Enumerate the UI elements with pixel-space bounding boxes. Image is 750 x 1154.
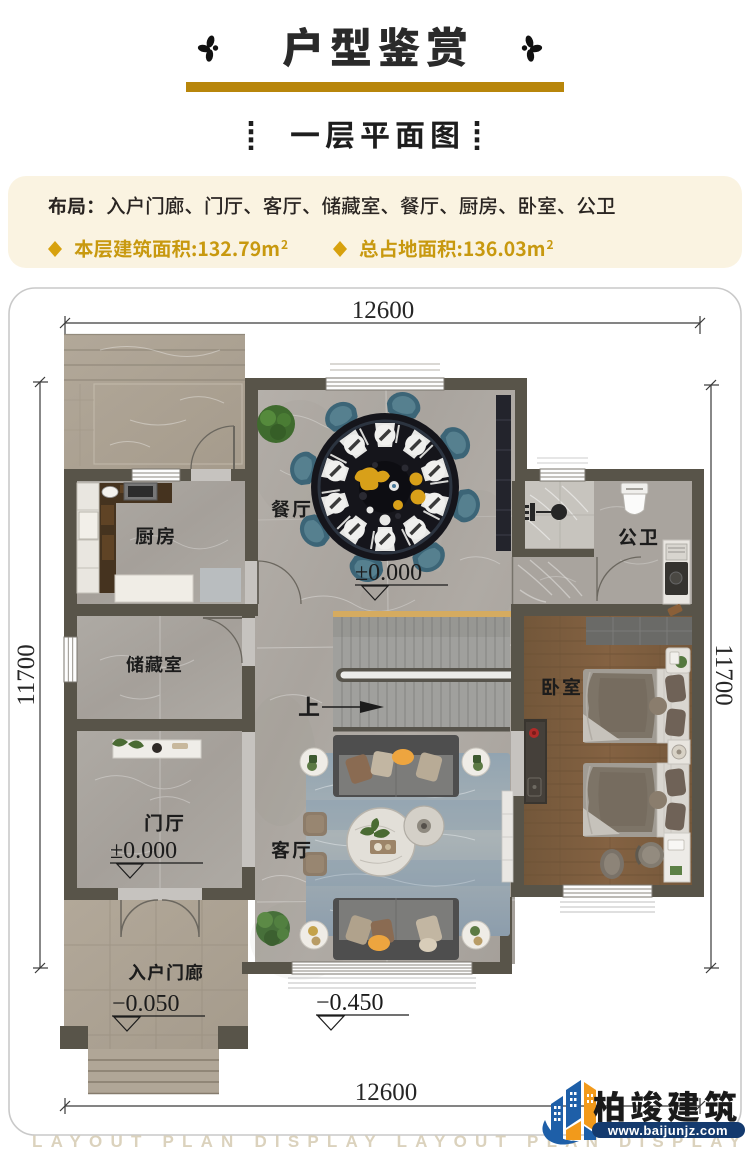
svg-text:12600: 12600	[352, 297, 415, 324]
svg-text:11700: 11700	[13, 644, 40, 706]
svg-text:±0.000: ±0.000	[110, 838, 177, 864]
svg-text:±0.000: ±0.000	[355, 560, 422, 586]
svg-text:www.baijunjz.com: www.baijunjz.com	[607, 1123, 728, 1138]
svg-text:−0.450: −0.450	[316, 990, 384, 1016]
svg-text:12600: 12600	[355, 1079, 418, 1106]
svg-text:11700: 11700	[710, 644, 737, 706]
svg-text:−0.050: −0.050	[112, 991, 180, 1017]
